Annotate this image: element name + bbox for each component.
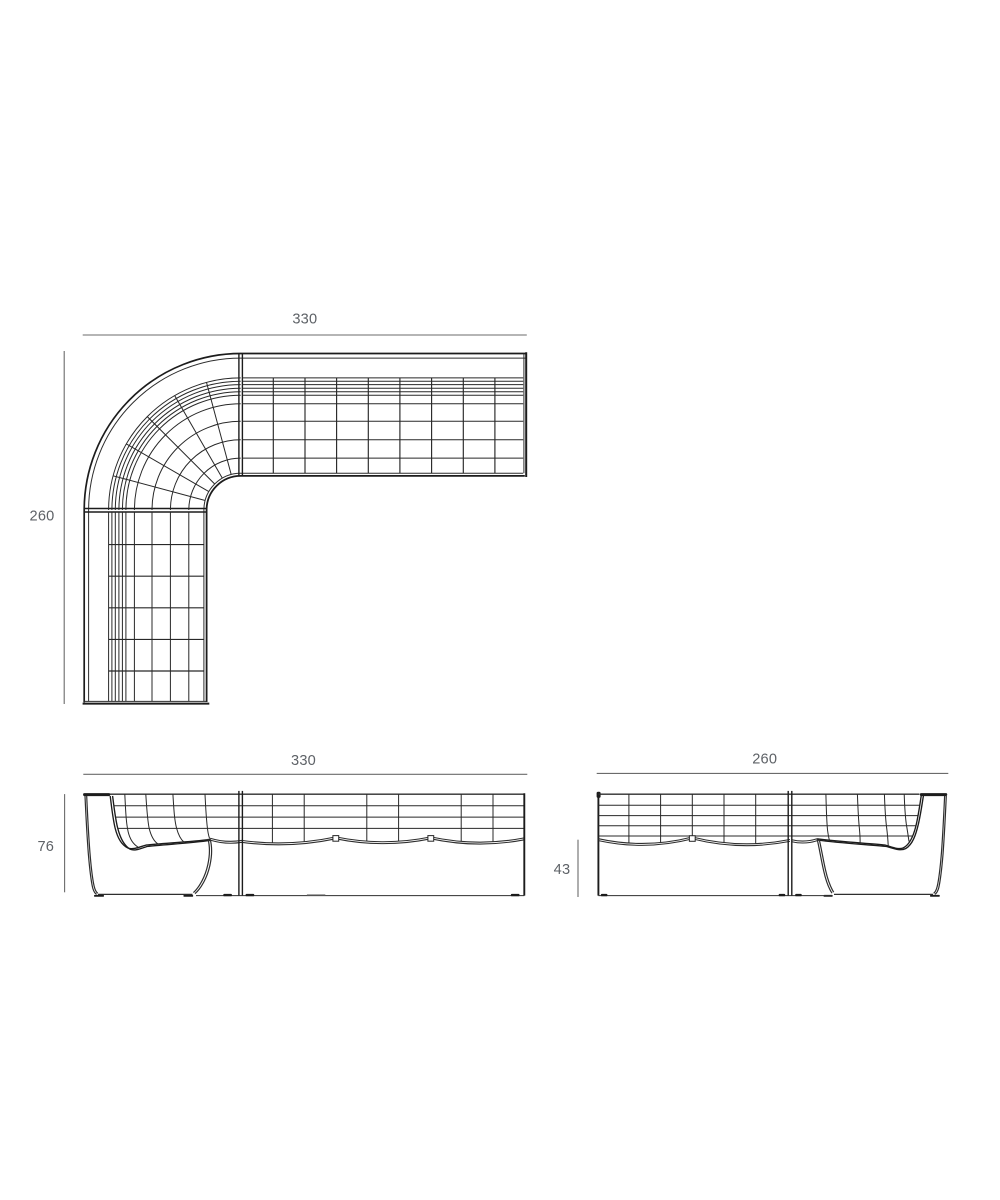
svg-text:330: 330 bbox=[291, 753, 316, 769]
svg-text:260: 260 bbox=[30, 508, 55, 524]
svg-text:330: 330 bbox=[292, 311, 317, 327]
svg-text:260: 260 bbox=[752, 752, 777, 768]
svg-text:76: 76 bbox=[37, 839, 54, 855]
svg-text:43: 43 bbox=[554, 862, 571, 878]
